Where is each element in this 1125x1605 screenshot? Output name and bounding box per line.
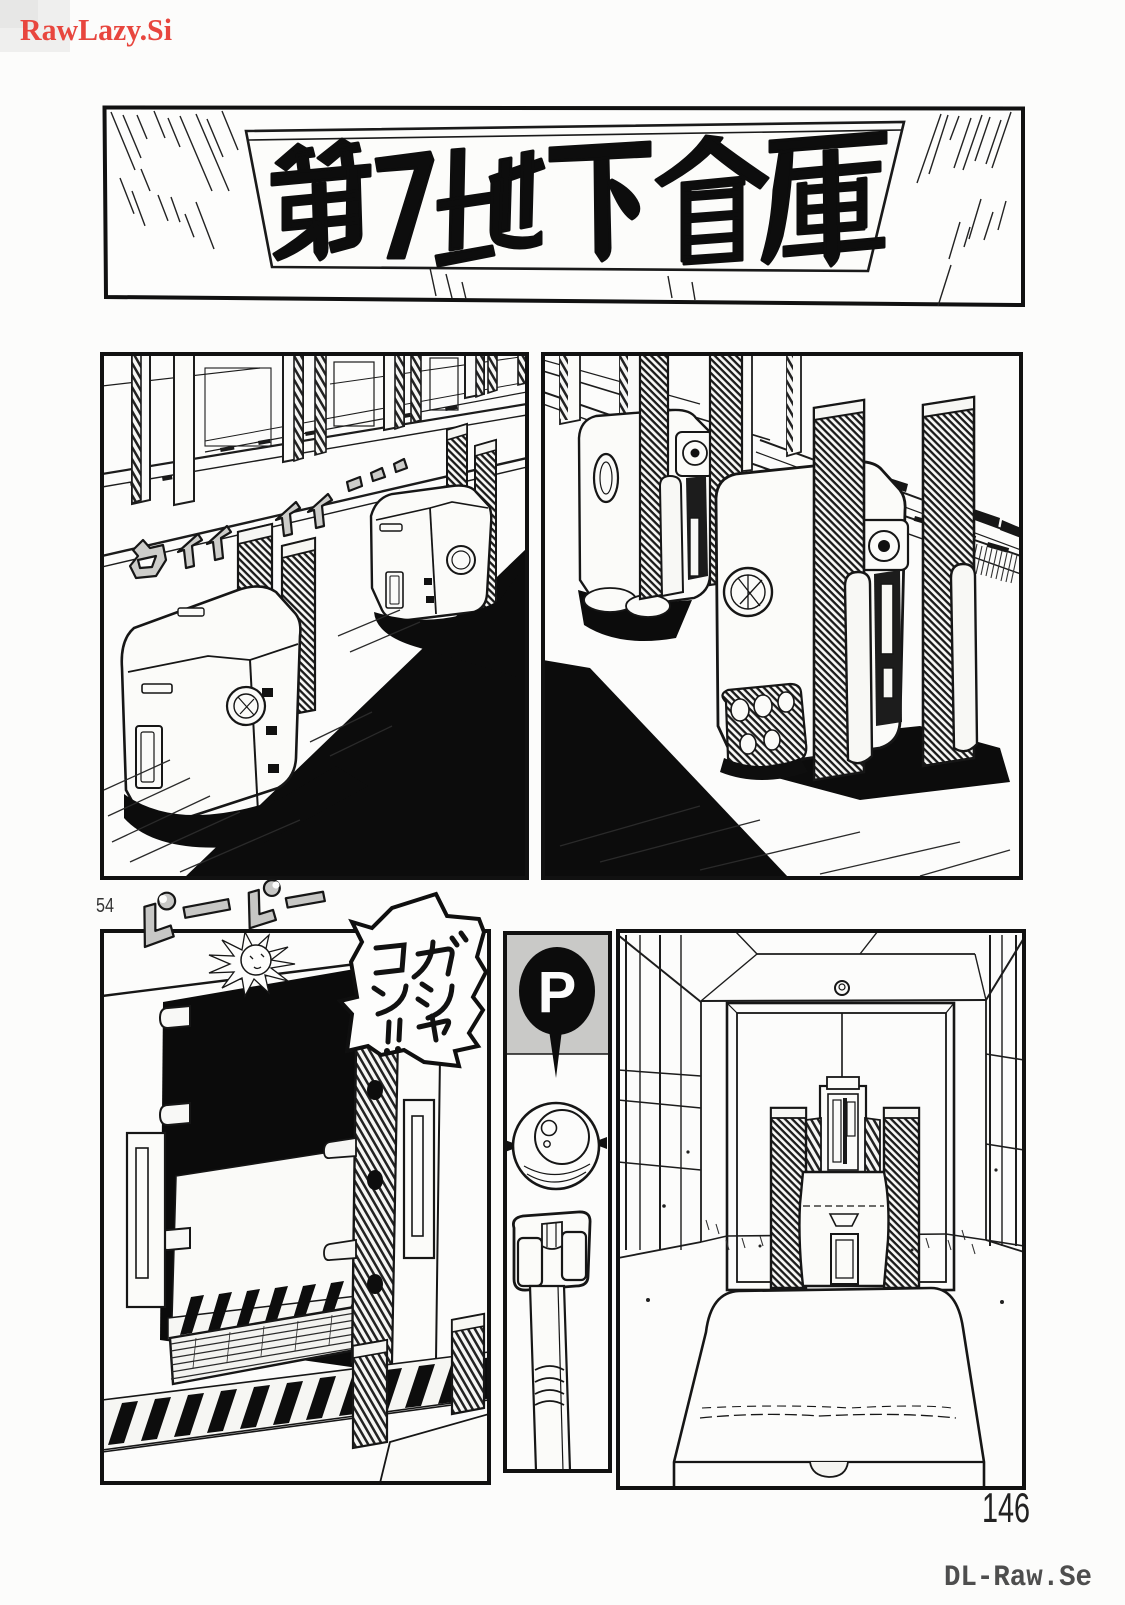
- svg-text:RawLazy.Si: RawLazy.Si: [20, 12, 172, 47]
- svg-text:54: 54: [96, 895, 114, 917]
- svg-text:P: P: [538, 960, 577, 1025]
- svg-text:DL-Raw.Se: DL-Raw.Se: [944, 1561, 1092, 1595]
- svg-text:146: 146: [982, 1484, 1030, 1531]
